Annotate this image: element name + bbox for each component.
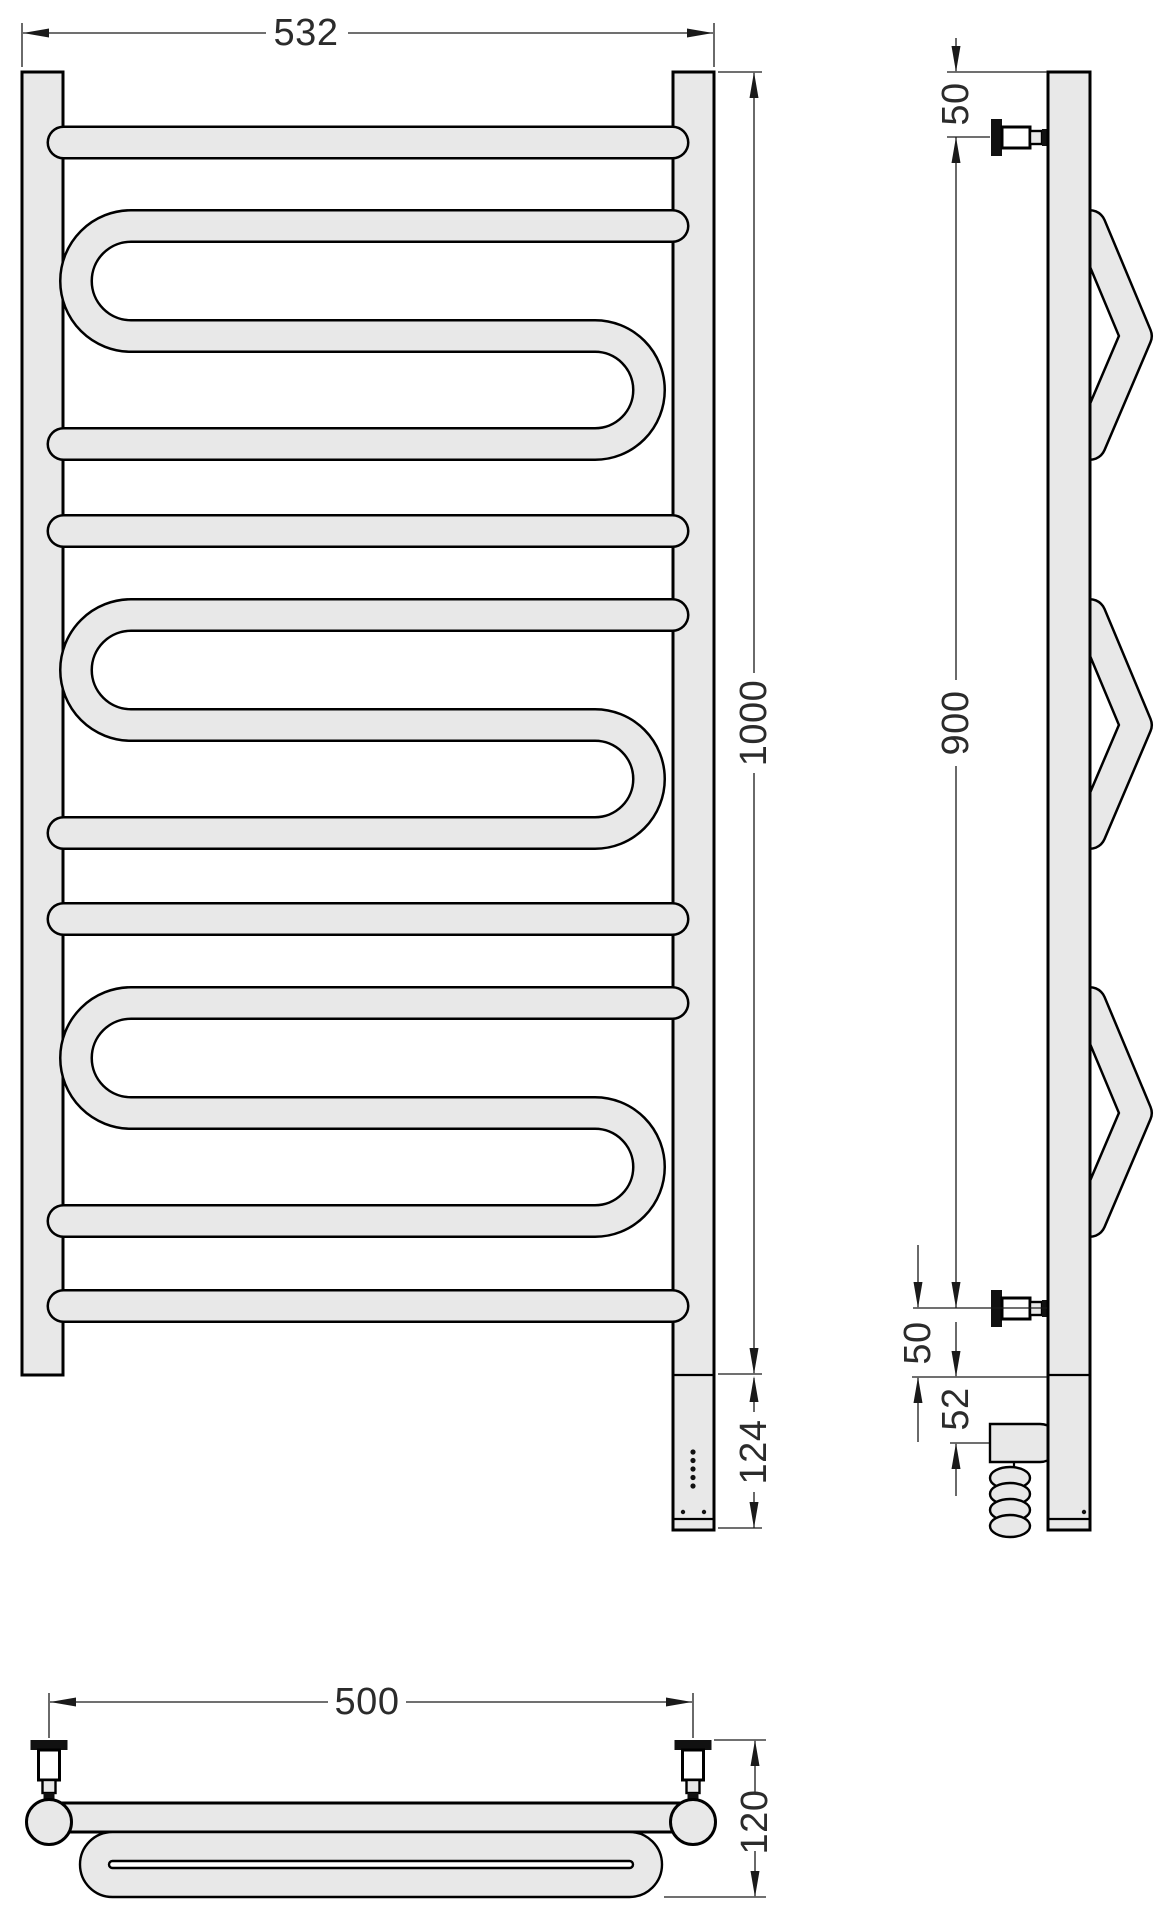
dim-plan-width: 500 [49, 1681, 693, 1738]
towel-rail-drawing: 532 1000 124 [0, 0, 1170, 1920]
dim-label-532: 532 [274, 12, 339, 54]
dim-label-50-bottom: 50 [897, 1321, 939, 1364]
plan-ball-joint-right [671, 1800, 716, 1845]
front-view: 532 1000 124 [22, 12, 775, 1530]
wall-bracket-top [991, 119, 1049, 156]
dim-label-900: 900 [935, 691, 977, 756]
serpentine-2 [64, 615, 673, 833]
dim-label-50-top: 50 [935, 82, 977, 125]
dim-label-52: 52 [935, 1387, 977, 1430]
plan-bracket-left [31, 1740, 68, 1801]
bottom-view: 500 120 [27, 1681, 777, 1897]
coiled-cable [990, 1467, 1030, 1537]
dim-label-1000: 1000 [733, 680, 775, 767]
plan-bracket-right [675, 1740, 712, 1801]
dim-element-height: 124 [718, 1376, 775, 1528]
screw-dot-left [681, 1510, 685, 1514]
side-screw-dot [1082, 1510, 1086, 1514]
dim-label-120: 120 [734, 1790, 776, 1855]
dim-label-124: 124 [733, 1420, 775, 1485]
side-view: 50 900 50 52 [897, 38, 1136, 1537]
dim-label-500: 500 [335, 1681, 400, 1723]
side-hook-2 [1090, 615, 1136, 833]
serpentine-3 [64, 1003, 673, 1221]
plan-wall-rail [49, 1803, 693, 1832]
front-left-rail [22, 72, 63, 1375]
side-rail [1048, 72, 1090, 1530]
screw-dot-right [702, 1510, 706, 1514]
serpentine-1 [64, 226, 673, 444]
plan-ball-joint-left [27, 1800, 72, 1845]
plan-serpentine-loop [80, 1832, 662, 1897]
technical-drawing-page: 532 1000 124 [0, 0, 1170, 1920]
side-hook-1 [1090, 226, 1136, 444]
dim-side-chain: 50 900 50 52 [897, 38, 1047, 1496]
dim-front-height: 1000 [718, 72, 775, 1374]
dim-front-width: 532 [22, 12, 714, 67]
side-hook-3 [1090, 1003, 1136, 1221]
